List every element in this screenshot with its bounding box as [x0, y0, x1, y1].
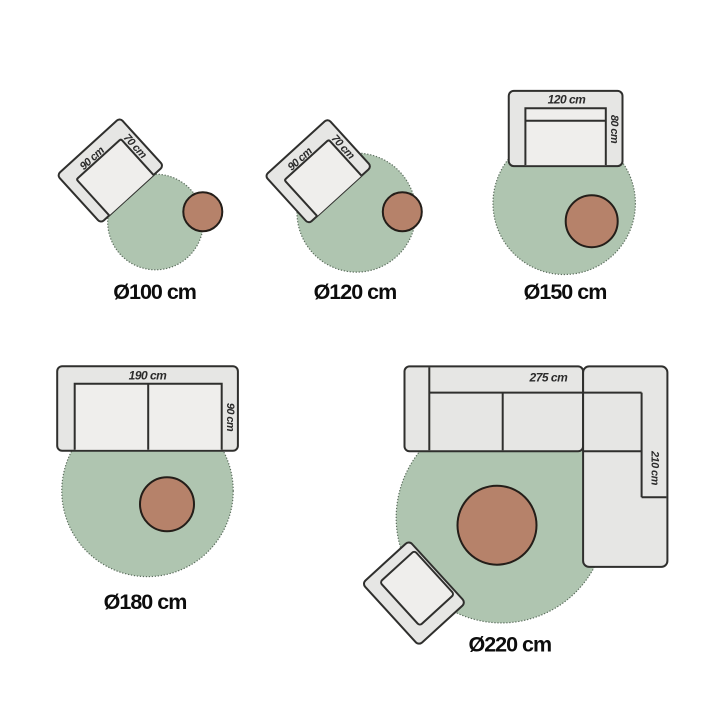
svg-text:90 cm: 90 cm — [224, 403, 236, 432]
svg-text:Ø180 cm: Ø180 cm — [104, 590, 187, 614]
svg-text:210 cm: 210 cm — [648, 450, 660, 486]
svg-text:Ø100 cm: Ø100 cm — [113, 280, 196, 304]
svg-text:Ø120 cm: Ø120 cm — [314, 280, 397, 304]
svg-text:120 cm: 120 cm — [548, 93, 587, 107]
svg-text:275 cm: 275 cm — [529, 371, 569, 385]
svg-text:Ø220 cm: Ø220 cm — [468, 633, 551, 657]
svg-text:190 cm: 190 cm — [129, 369, 168, 383]
svg-text:Ø150 cm: Ø150 cm — [524, 280, 607, 304]
svg-text:80 cm: 80 cm — [608, 115, 620, 144]
